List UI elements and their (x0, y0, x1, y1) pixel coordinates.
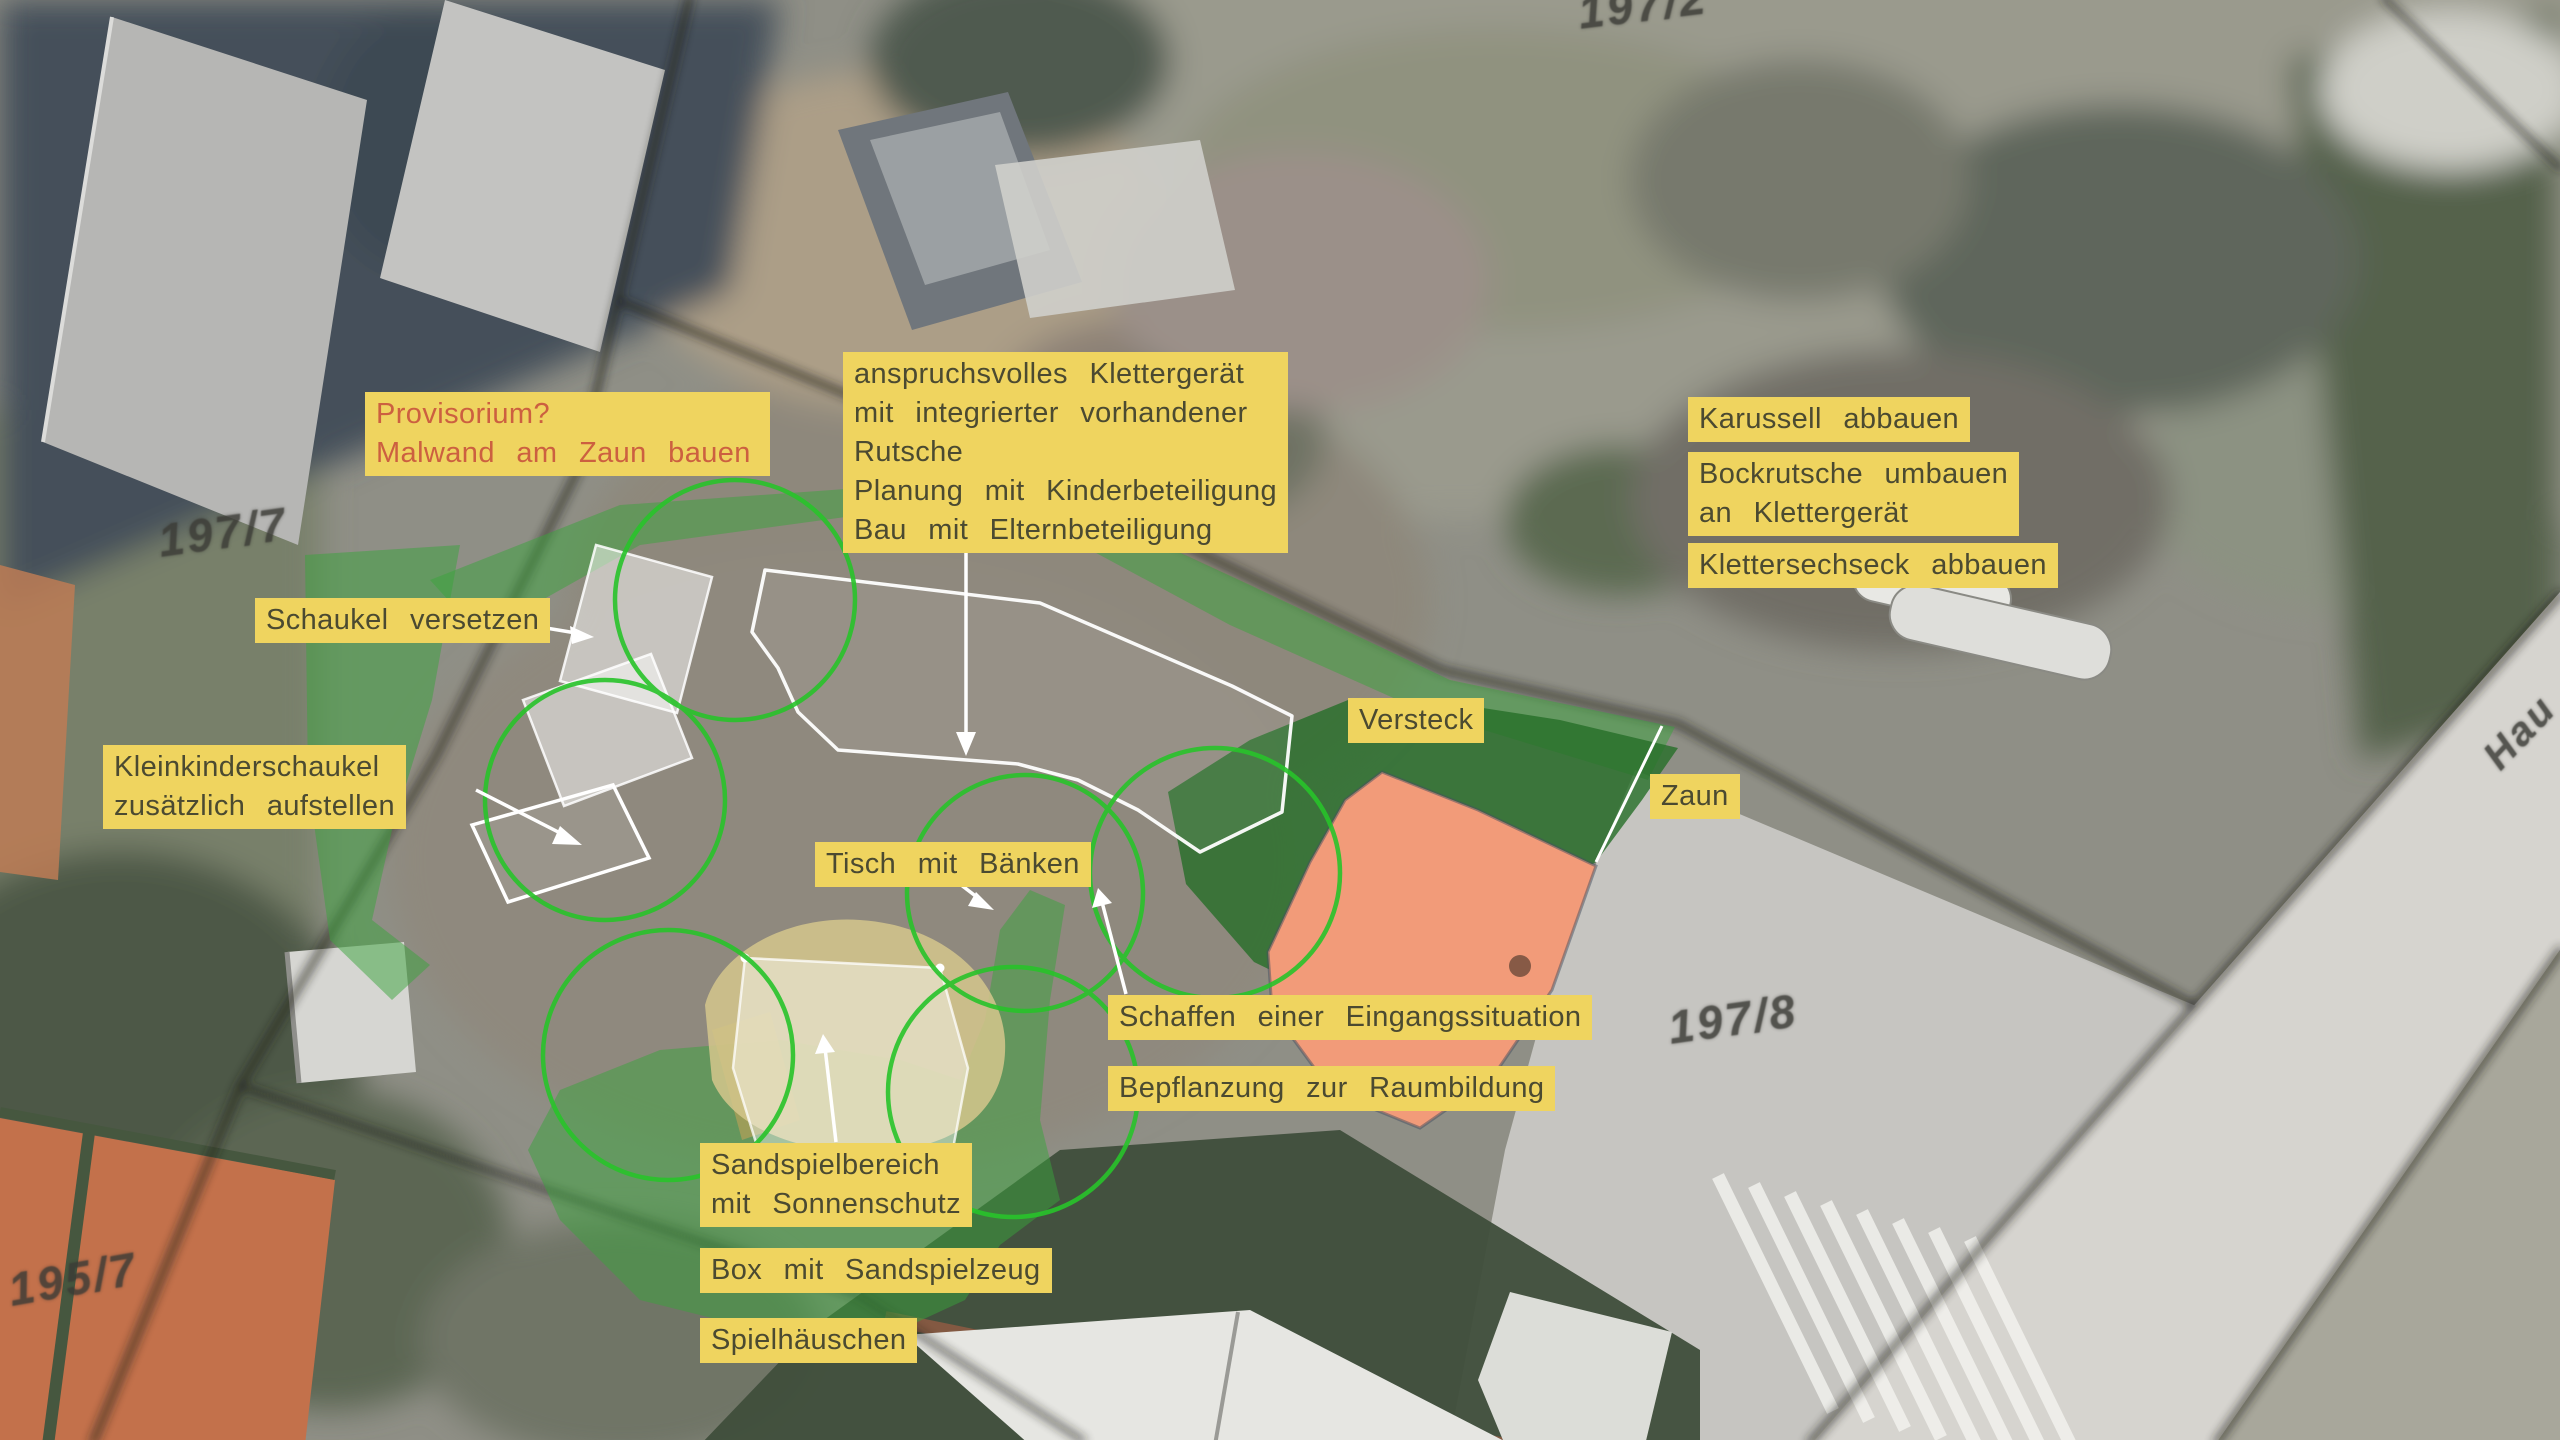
note-line: Bockrutsche umbauen (1699, 455, 2008, 494)
note-line: Kleinkinderschaukel (114, 748, 395, 787)
note-line: Bau mit Elternbeteiligung (854, 511, 1277, 550)
note-line: mit Sonnenschutz (711, 1185, 961, 1224)
note-line: Schaffen einer Eingangssituation (1119, 998, 1581, 1037)
note-line: mit integrierter vorhandener (854, 394, 1277, 433)
note-line: zusätzlich aufstellen (114, 787, 395, 826)
note-tisch: Tisch mit Bänken (815, 842, 1091, 887)
note-line: Bepflanzung zur Raumbildung (1119, 1069, 1544, 1108)
note-line: an Klettergerät (1699, 494, 2008, 533)
note-versteck: Versteck (1348, 698, 1484, 743)
note-line: Provisorium? (376, 395, 759, 434)
note-kleinkinderschaukel: Kleinkinderschaukel zusätzlich aufstelle… (103, 745, 406, 829)
note-provisorium: Provisorium? Malwand am Zaun bauen (365, 392, 770, 476)
aerial-overlay-canvas (0, 0, 2560, 1440)
note-zaun: Zaun (1650, 774, 1740, 819)
note-line: Klettersechseck abbauen (1699, 546, 2047, 585)
note-box: Box mit Sandspielzeug (700, 1248, 1052, 1293)
note-bepflanzung: Bepflanzung zur Raumbildung (1108, 1066, 1555, 1111)
note-line: anspruchsvolles Klettergerät (854, 355, 1277, 394)
note-line: Rutsche (854, 433, 1277, 472)
note-line: Planung mit Kinderbeteiligung (854, 472, 1277, 511)
note-karussell: Karussell abbauen (1688, 397, 1970, 442)
note-klettergeraet: anspruchsvolles Klettergerät mit integri… (843, 352, 1288, 553)
note-line: Box mit Sandspielzeug (711, 1251, 1041, 1290)
note-sandspielbereich: Sandspielbereich mit Sonnenschutz (700, 1143, 972, 1227)
note-klettersechseck: Klettersechseck abbauen (1688, 543, 2058, 588)
site-plan: 197/7 197/2 197/8 195/7 Hau Provisorium?… (0, 0, 2560, 1440)
note-line: Malwand am Zaun bauen (376, 434, 759, 473)
note-spielhaeuschen: Spielhäuschen (700, 1318, 917, 1363)
note-line: Schaukel versetzen (266, 601, 539, 640)
note-line: Tisch mit Bänken (826, 845, 1080, 884)
note-line: Sandspielbereich (711, 1146, 961, 1185)
note-bockrutsche: Bockrutsche umbauen an Klettergerät (1688, 452, 2019, 536)
note-line: Versteck (1359, 701, 1473, 740)
note-line: Spielhäuschen (711, 1321, 906, 1360)
note-eingang: Schaffen einer Eingangssituation (1108, 995, 1592, 1040)
note-line: Karussell abbauen (1699, 400, 1959, 439)
note-line: Zaun (1661, 777, 1729, 816)
building-roof (995, 140, 1235, 318)
note-schaukel: Schaukel versetzen (255, 598, 550, 643)
sun-canopy-outline (733, 958, 968, 1172)
